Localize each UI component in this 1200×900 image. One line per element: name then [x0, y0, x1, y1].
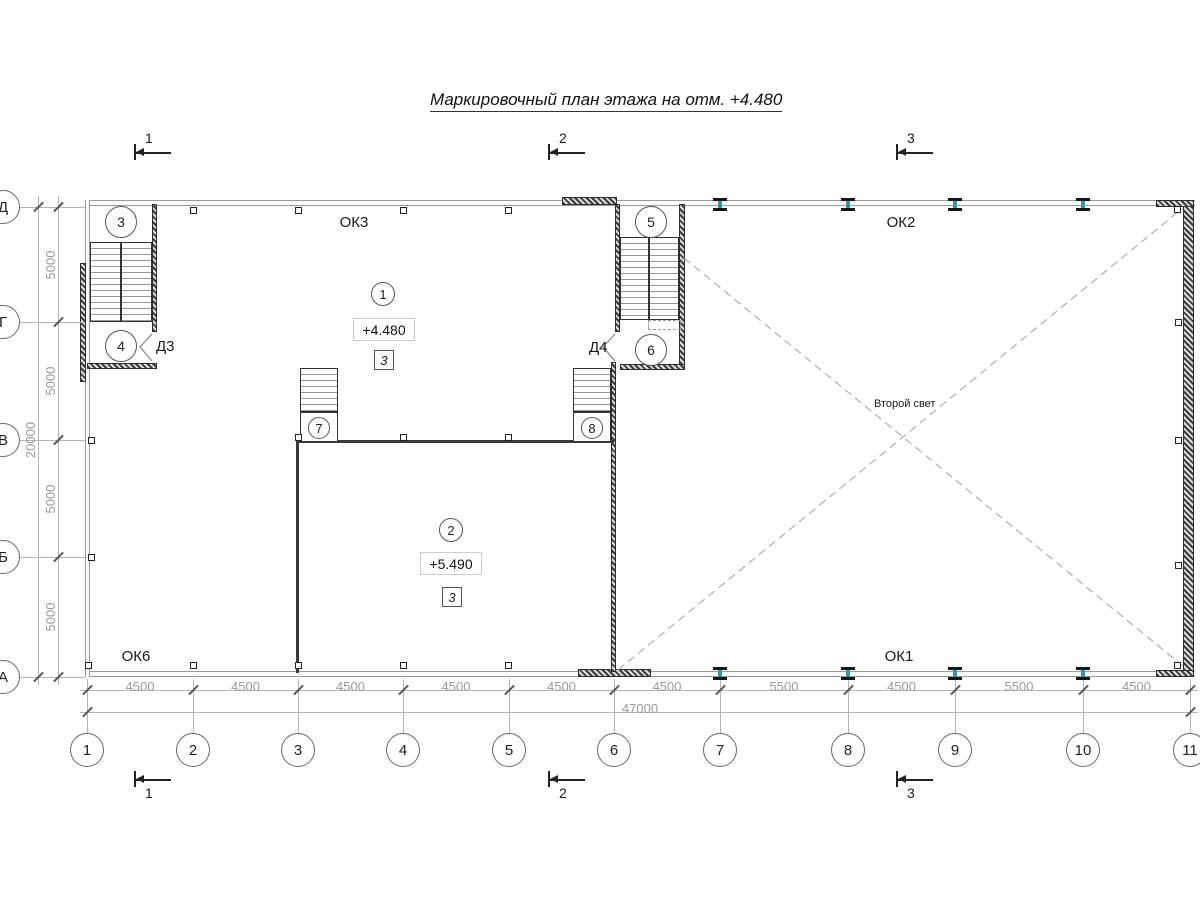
elevation-mark: +5.490 [420, 552, 482, 575]
column-marker [295, 434, 302, 441]
column-marker [505, 434, 512, 441]
column-marker [1175, 437, 1182, 444]
column-marker [1175, 319, 1182, 326]
grid-bubble-column: 1 [70, 733, 104, 767]
circled-mark: 2 [439, 518, 463, 542]
plan-linework [0, 0, 1200, 900]
grid-bubble-column: 6 [597, 733, 631, 767]
section-mark-arrow [136, 775, 144, 783]
section-mark-arrow [898, 775, 906, 783]
column-marker [400, 207, 407, 214]
column-marker [295, 662, 302, 669]
column-marker [1174, 662, 1181, 669]
dim-value: 5500 [993, 679, 1045, 694]
steel-beam-icon [841, 667, 855, 680]
dim-value: 5000 [43, 597, 57, 637]
circled-mark: 3 [105, 206, 137, 238]
window-label: ОК3 [329, 214, 379, 231]
section-mark-arrow [550, 775, 558, 783]
dim-value: 4500 [536, 679, 588, 694]
circled-mark: 8 [581, 417, 603, 439]
section-mark-arrow [550, 148, 558, 156]
grid-bubble-column: 7 [703, 733, 737, 767]
dim-total-width: 47000 [610, 701, 670, 716]
dim-value: 4500 [430, 679, 482, 694]
stair-a-divider [120, 242, 122, 322]
elevation-mark: +4.480 [353, 318, 415, 341]
grid-bubble-column: 11 [1173, 733, 1200, 767]
grid-leader [16, 677, 85, 678]
section-mark-arrow [898, 148, 906, 156]
dim-value: 5000 [43, 361, 57, 401]
column-marker [190, 662, 197, 669]
steel-beam-icon [1076, 667, 1090, 680]
section-mark-label: 2 [559, 785, 567, 801]
column-marker [400, 434, 407, 441]
steel-beam-icon [1076, 198, 1090, 211]
column-marker [88, 554, 95, 561]
dim-value: 4500 [1111, 679, 1163, 694]
column-marker [295, 207, 302, 214]
second-light-label: Второй свет [874, 398, 935, 410]
grid-bubble-column: 9 [938, 733, 972, 767]
dim-value: 5000 [43, 245, 57, 285]
section-mark-label: 3 [907, 130, 915, 146]
section-mark-label: 1 [145, 130, 153, 146]
stair-b-divider [648, 237, 650, 320]
door-label: Д4 [589, 339, 619, 356]
steel-beam-icon [948, 667, 962, 680]
type-mark: 3 [442, 587, 462, 607]
circled-mark: 6 [635, 334, 667, 366]
dim-value: 5500 [758, 679, 810, 694]
section-mark-label: 2 [559, 130, 567, 146]
column-marker [85, 662, 92, 669]
floor-plan: Маркировочный план этажа на отм. +4.480 … [0, 0, 1200, 900]
column-marker [190, 207, 197, 214]
grid-bubble-column: 2 [176, 733, 210, 767]
circled-mark: 7 [308, 417, 330, 439]
column-marker [88, 437, 95, 444]
dim-total-height: 20000 [23, 416, 37, 464]
dim-value: 5000 [43, 479, 57, 519]
stair-7-flight [300, 368, 338, 412]
stair-b-dashed-detail [648, 320, 681, 330]
circled-mark: 1 [371, 282, 395, 306]
grid-bubble-column: 8 [831, 733, 865, 767]
second-light-cross [618, 208, 1183, 670]
circled-mark: 5 [635, 206, 667, 238]
window-label: ОК1 [874, 648, 924, 665]
column-marker [1174, 206, 1181, 213]
grid-bubble-column: 3 [281, 733, 315, 767]
column-marker [400, 662, 407, 669]
grid-leader [16, 207, 85, 208]
grid-bubble-column: 5 [492, 733, 526, 767]
window-label: ОК6 [111, 648, 161, 665]
column-marker [505, 662, 512, 669]
grid-bubble-column: 10 [1066, 733, 1100, 767]
circled-mark: 4 [105, 330, 137, 362]
section-mark-label: 3 [907, 785, 915, 801]
steel-beam-icon [948, 198, 962, 211]
dim-value: 4500 [220, 679, 272, 694]
type-mark: 3 [374, 350, 394, 370]
door-label: Д3 [156, 338, 186, 355]
dim-value: 4500 [876, 679, 928, 694]
steel-beam-icon [713, 198, 727, 211]
steel-beam-icon [713, 667, 727, 680]
window-label: ОК2 [876, 214, 926, 231]
grid-leader [16, 322, 85, 323]
steel-beam-icon [841, 198, 855, 211]
grid-bubble-column: 4 [386, 733, 420, 767]
stair-8-flight [573, 368, 611, 412]
column-marker [505, 207, 512, 214]
dim-value: 4500 [641, 679, 693, 694]
dim-value: 4500 [114, 679, 166, 694]
section-mark-arrow [136, 148, 144, 156]
grid-leader [16, 557, 85, 558]
section-mark-label: 1 [145, 785, 153, 801]
dim-value: 4500 [325, 679, 377, 694]
column-marker [1175, 562, 1182, 569]
